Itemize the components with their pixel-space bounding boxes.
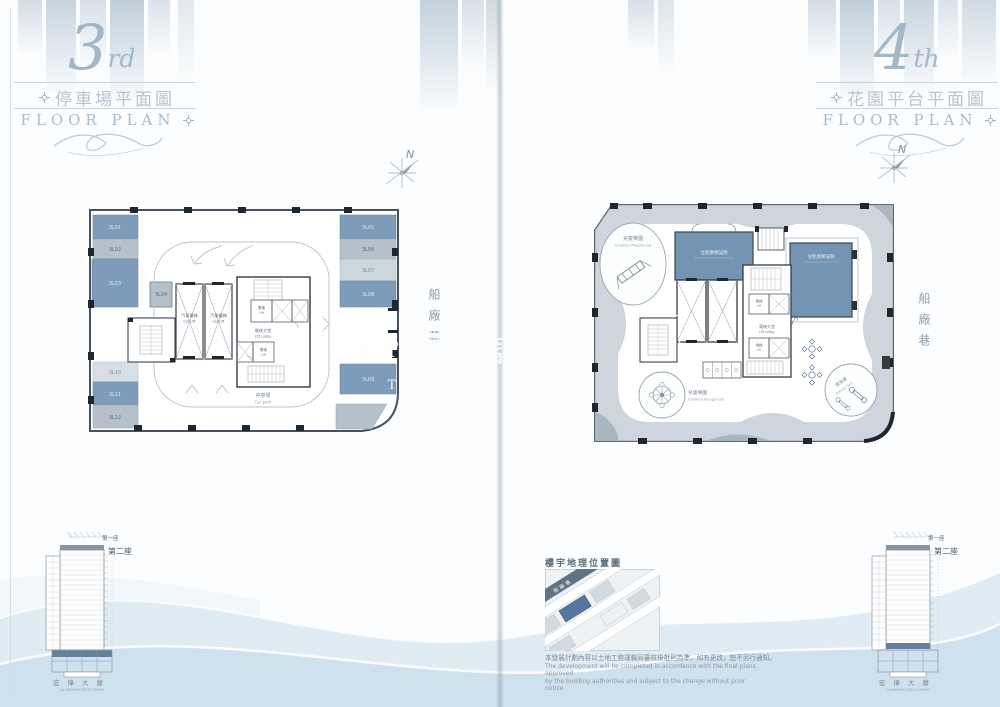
floor-suffix: th [913, 42, 939, 76]
right-title-chinese: 花園平台平面圖 [816, 85, 1000, 110]
street-name-right: 船廠巷 [916, 292, 933, 355]
activity-spot-circle: 健身處 Activity Spot [825, 364, 877, 416]
page-edge-line [10, 8, 11, 698]
stall-label: 3L04 [155, 292, 167, 298]
compass-ornament-icon [183, 115, 194, 126]
location-map-title: 樓宇地理位置圖 [545, 556, 622, 569]
title-rule-top [14, 82, 196, 83]
tower1-label: 第一座 [928, 534, 945, 542]
title-rule-bottom [14, 108, 196, 109]
left-title-cn-text: 停車場平面圖 [55, 85, 175, 110]
playground-en: Children Playground [615, 244, 651, 248]
compass-rose-right: N [874, 141, 914, 187]
right-title-cn-text: 花園平台平面圖 [847, 85, 987, 110]
floorplan-3f-carpark: 3L01 3L02 3L03 3L04 3L05 3L06 3L07 3L08 … [82, 200, 407, 450]
disclaimer-en-line1: The development will be completed in acc… [545, 663, 757, 678]
compass-ornament-icon [831, 92, 842, 103]
stall-label: 3L09 [362, 377, 374, 383]
left-title-block: 3 rd 停車場平面圖 FLOOR PLAN [14, 18, 200, 168]
carpark-en: Car park [254, 400, 272, 405]
car-lift-en: Car Lift [212, 320, 225, 324]
left-title-chinese: 停車場平面圖 [14, 85, 200, 110]
floor-number: 3 [68, 20, 107, 76]
location-map: 船廠巷 [545, 569, 660, 651]
floor-suffix: rd [107, 42, 135, 76]
left-title-english: FLOOR PLAN [14, 111, 200, 129]
recreation-room-1: 住客康樂設施 [675, 224, 753, 280]
car-lift-cn: 汽車電梯 [210, 312, 227, 319]
disclaimer-en-line2: by the building authorities and subject … [545, 678, 757, 693]
tower2-label: 第二座 [108, 546, 132, 556]
title-rule-top [816, 82, 998, 83]
disclaimer-block: 本發展計劃內容以土地工務運輸局審核後批則為準，如有更改，恕不另行通知。 The … [545, 654, 757, 693]
compass-ornament-icon [985, 115, 996, 126]
flourish-ornament [48, 130, 166, 160]
disclaimer-cn: 本發展計劃內容以土地工務運輸局審核後批則為準，如有更改，恕不另行通知。 [545, 654, 757, 663]
carpark-cn: 停車場 [255, 392, 270, 399]
stall-label: 3L11 [109, 392, 121, 398]
stall-label: 3L06 [362, 247, 374, 253]
stair-vent-shaft [755, 226, 788, 250]
playground-cn: 兒童樂園 [688, 389, 707, 396]
tower-elevation-left: 第一座 第二座 宏偉大廈 LA MAGNIFICENCE TOWER [30, 530, 145, 692]
car-lift-en: Car Lift [183, 320, 196, 324]
lift-en: Lift [261, 353, 267, 357]
left-title-en-text: FLOOR PLAN [20, 111, 175, 129]
wall-fixture [882, 356, 890, 369]
west-stair [128, 318, 175, 362]
room-label: 住客康樂設施 [807, 253, 835, 260]
lobby-cn: 電梯大堂 [759, 323, 775, 329]
building-name-en: LA MAGNIFICENCE TOWER [60, 688, 104, 692]
page-gutter [496, 0, 504, 707]
lift-cn: 電梯 [258, 305, 266, 310]
children-playground-oval: 兒童樂園 Children Playground [600, 223, 666, 305]
lobby-en: Lift Lobby [759, 330, 775, 334]
playground-cn: 兒童樂園 [623, 235, 643, 242]
brochure-spread: 3 rd 停車場平面圖 FLOOR PLAN 4 th [0, 0, 1000, 707]
stall-label: 3L07 [362, 268, 374, 274]
stall-label: 3L05 [362, 225, 374, 231]
tower1-label: 第一座 [102, 534, 119, 542]
car-lift-cn: 汽車電梯 [181, 312, 198, 319]
left-title-ordinal: 3 rd [68, 20, 135, 76]
compass-rose-left: N [382, 146, 422, 192]
stall-label: 3L12 [109, 415, 121, 421]
lift-cn: 電梯 [260, 347, 268, 352]
floor-number: 4 [874, 20, 913, 76]
title-rule-bottom [816, 108, 998, 109]
stall-label: 3L03 [109, 281, 121, 287]
stall-label: 3L02 [109, 247, 121, 253]
west-stair [638, 316, 680, 365]
room-label: 住客康樂設施 [700, 249, 728, 256]
lift-core: 電梯 Lift 電梯大堂 Lift Lobby 電梯 Lift [237, 277, 310, 387]
tower2-label: 第二座 [934, 546, 958, 556]
right-title-ordinal: 4 th [874, 20, 940, 76]
toilet-cells [703, 362, 741, 378]
compass-n-label: N [406, 148, 414, 161]
tower-elevation-right: 第一座 第二座 宏偉大廈 LA MAGNIFICENCE TOWER [856, 530, 971, 692]
stall-label: 3L01 [109, 225, 121, 231]
stall-label: 3L10 [109, 370, 121, 376]
street-name-left: 船廠巷 [426, 288, 443, 351]
compass-n-label: N [898, 143, 906, 156]
building-name-cn: 宏偉大廈 [53, 678, 111, 687]
stall-label: 3L08 [362, 292, 374, 298]
recreation-room-2: 住客康樂設施 [786, 238, 858, 325]
building-name-en: LA MAGNIFICENCE TOWER [886, 688, 930, 692]
floorplan-4f-garden: 兒童樂園 Children Playground 住客康樂設施 住客康樂設施 [588, 198, 903, 453]
lift-core: 電梯 Lift 電梯大堂 Lift Lobby 電梯 Lift [743, 265, 798, 377]
right-title-en-text: FLOOR PLAN [822, 111, 977, 129]
lobby-cn: 電梯大堂 [255, 327, 272, 334]
right-title-english: FLOOR PLAN [816, 111, 1000, 129]
lift-en: Lift [259, 311, 265, 315]
compass-ornament-icon [39, 92, 50, 103]
playground-en: Children Playground [688, 398, 724, 402]
building-name-cn: 宏偉大廈 [879, 678, 937, 687]
lobby-en: Lift Lobby [255, 335, 272, 339]
